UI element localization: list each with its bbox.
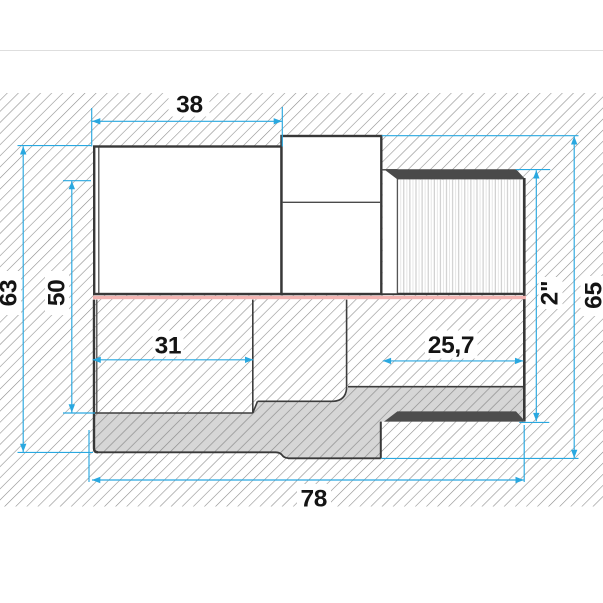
svg-text:31: 31 (155, 333, 182, 360)
svg-text:78: 78 (300, 486, 327, 513)
svg-text:25,7: 25,7 (428, 332, 474, 359)
svg-text:38: 38 (176, 92, 203, 119)
svg-text:65: 65 (581, 282, 603, 309)
svg-text:50: 50 (44, 279, 71, 306)
svg-text:63: 63 (0, 280, 22, 307)
svg-text:2": 2" (537, 281, 564, 306)
